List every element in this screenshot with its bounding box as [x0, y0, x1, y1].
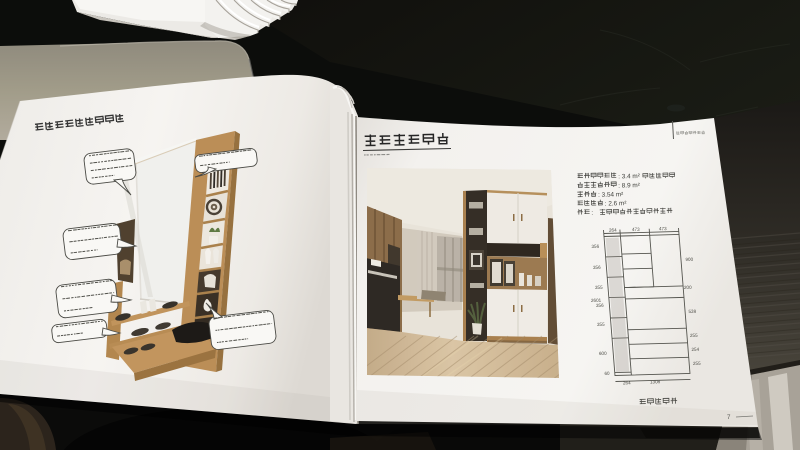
- svg-text:255: 255: [690, 333, 698, 338]
- svg-text:356: 356: [593, 265, 601, 270]
- svg-text:: 3.4 m²: : 3.4 m²: [618, 173, 640, 180]
- svg-text:60: 60: [604, 371, 610, 376]
- svg-text:264: 264: [609, 227, 617, 232]
- svg-text:200: 200: [684, 285, 692, 290]
- svg-text:600: 600: [599, 351, 607, 356]
- svg-text:: 3.54 m²: : 3.54 m²: [598, 191, 623, 199]
- svg-text:473: 473: [632, 227, 640, 232]
- svg-text:355: 355: [595, 285, 603, 290]
- svg-text:356: 356: [596, 303, 604, 308]
- svg-text:255: 255: [693, 361, 701, 366]
- svg-text:: 2.6 m²: : 2.6 m²: [605, 200, 627, 207]
- svg-text:538: 538: [688, 309, 696, 314]
- svg-text:: 8.9 m²: : 8.9 m²: [618, 182, 640, 189]
- svg-text:264: 264: [623, 380, 631, 385]
- svg-text:473: 473: [659, 226, 667, 231]
- svg-text:355: 355: [597, 322, 605, 327]
- svg-text:7: 7: [727, 414, 731, 421]
- svg-text:900: 900: [685, 257, 693, 262]
- svg-text:356: 356: [591, 244, 599, 249]
- svg-text:1308: 1308: [650, 379, 661, 384]
- svg-text:254: 254: [691, 347, 699, 352]
